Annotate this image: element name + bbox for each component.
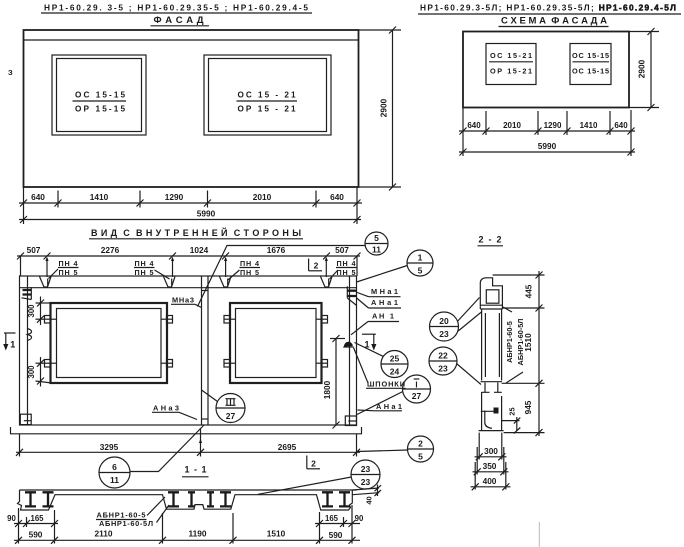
svg-text:640: 640 [467, 121, 481, 130]
svg-text:В И Д С В Н У Т Р Е Н Н Е Й: В И Д С В Н У Т Р Е Н Н Е Й С Т О Р О Н … [91, 227, 301, 238]
svg-text:АБНР1-60-5Л: АБНР1-60-5Л [516, 319, 525, 366]
svg-text:1800: 1800 [322, 380, 332, 399]
svg-text:6: 6 [112, 462, 117, 472]
svg-text:ОС 15-15: ОС 15-15 [572, 51, 609, 60]
svg-text:27: 27 [412, 391, 422, 401]
svg-text:507: 507 [27, 245, 41, 255]
svg-text:27: 27 [226, 411, 236, 421]
svg-text:2110: 2110 [95, 528, 113, 538]
svg-text:2010: 2010 [253, 192, 272, 202]
svg-text:АНа3: АНа3 [153, 404, 179, 413]
svg-text:300: 300 [27, 365, 36, 379]
svg-text:640: 640 [614, 121, 628, 130]
svg-text:2: 2 [311, 459, 316, 469]
svg-text:11: 11 [372, 245, 381, 255]
svg-text:165: 165 [30, 514, 44, 523]
svg-text:1024: 1024 [190, 245, 209, 255]
svg-text:ПН 4: ПН 4 [240, 259, 259, 268]
svg-text:З: З [8, 68, 13, 77]
svg-text:МНа1: МНа1 [371, 287, 398, 296]
svg-text:445: 445 [524, 284, 534, 298]
svg-text:ПН 4: ПН 4 [59, 259, 78, 268]
svg-text:2 - 2: 2 - 2 [479, 235, 502, 245]
svg-text:90: 90 [355, 514, 364, 523]
svg-text:АН 1: АН 1 [372, 312, 394, 321]
svg-text:400: 400 [483, 476, 497, 486]
svg-text:1290: 1290 [165, 192, 184, 202]
svg-text:40: 40 [365, 496, 374, 504]
svg-text:5: 5 [418, 266, 423, 276]
svg-text:300: 300 [484, 446, 498, 456]
svg-text:3295: 3295 [100, 442, 119, 452]
svg-text:ШПОНКИ: ШПОНКИ [367, 380, 405, 389]
svg-text:23: 23 [361, 477, 371, 487]
svg-text:ПН 4: ПН 4 [337, 259, 356, 268]
svg-text:11: 11 [110, 475, 119, 485]
svg-text:23: 23 [439, 329, 449, 339]
svg-text:23: 23 [438, 364, 448, 374]
svg-text:ОС 15-15: ОС 15-15 [75, 91, 125, 100]
svg-text:25: 25 [390, 354, 400, 364]
svg-text:Ф А С А Д: Ф А С А Д [154, 15, 204, 26]
svg-text:20: 20 [439, 316, 449, 326]
svg-text:1290: 1290 [544, 121, 562, 130]
svg-text:2010: 2010 [503, 121, 521, 130]
svg-text:5990: 5990 [197, 209, 216, 219]
svg-text:ОС 15 - 21: ОС 15 - 21 [238, 91, 296, 100]
svg-text:ПН 4: ПН 4 [135, 259, 154, 268]
svg-text:300: 300 [27, 304, 36, 318]
svg-text:1410: 1410 [90, 192, 109, 202]
svg-text:I: I [415, 380, 417, 389]
svg-text:ОС 15-21: ОС 15-21 [490, 51, 532, 60]
svg-text:90: 90 [7, 514, 16, 523]
svg-text:1410: 1410 [580, 121, 598, 130]
svg-text:ОР 15 - 21: ОР 15 - 21 [238, 105, 296, 114]
svg-text:МНа3: МНа3 [172, 296, 194, 305]
svg-text:2900: 2900 [637, 59, 647, 78]
svg-text:2276: 2276 [101, 245, 120, 255]
svg-text:640: 640 [31, 192, 45, 202]
svg-text:АБНР1-60-5Л: АБНР1-60-5Л [99, 519, 153, 528]
svg-text:25: 25 [508, 407, 517, 415]
svg-text:590: 590 [329, 530, 343, 540]
svg-text:ОС 15-15: ОС 15-15 [572, 67, 609, 76]
svg-text:АБНР1-60-5: АБНР1-60-5 [505, 321, 514, 363]
svg-text:2: 2 [418, 439, 423, 449]
svg-text:5: 5 [374, 233, 379, 243]
svg-text:24: 24 [390, 367, 400, 377]
svg-text:1510: 1510 [267, 528, 286, 538]
svg-text:5: 5 [418, 452, 423, 462]
svg-text:1: 1 [10, 340, 15, 350]
svg-text:640: 640 [330, 192, 344, 202]
svg-text:5990: 5990 [538, 141, 557, 151]
svg-text:350: 350 [483, 461, 497, 471]
svg-text:1676: 1676 [267, 245, 286, 255]
svg-text:23: 23 [361, 464, 371, 474]
svg-text:2695: 2695 [278, 442, 297, 452]
svg-text:С Х Е М А Ф А С А Д А: С Х Е М А Ф А С А Д А [501, 15, 607, 26]
svg-text:590: 590 [29, 529, 43, 539]
svg-text:1 - 1: 1 - 1 [185, 465, 207, 475]
svg-text:НР1-60.29. 3-5 ; НР1-60.29.35-: НР1-60.29. 3-5 ; НР1-60.29.35-5 ; НР1-60… [44, 3, 308, 13]
svg-text:1: 1 [418, 253, 423, 263]
svg-text:1190: 1190 [189, 528, 207, 538]
svg-text:ОР 15-21: ОР 15-21 [490, 67, 532, 76]
svg-text:165: 165 [325, 514, 339, 523]
svg-text:2900: 2900 [379, 98, 389, 117]
svg-text:2: 2 [314, 261, 319, 271]
svg-text:НР1-60.29.3-5Л; НР1-60.29.35-5: НР1-60.29.3-5Л; НР1-60.29.35-5Л; НР1-60.… [420, 3, 676, 13]
svg-text:945: 945 [523, 400, 533, 414]
svg-text:22: 22 [438, 351, 448, 361]
svg-text:507: 507 [335, 245, 349, 255]
